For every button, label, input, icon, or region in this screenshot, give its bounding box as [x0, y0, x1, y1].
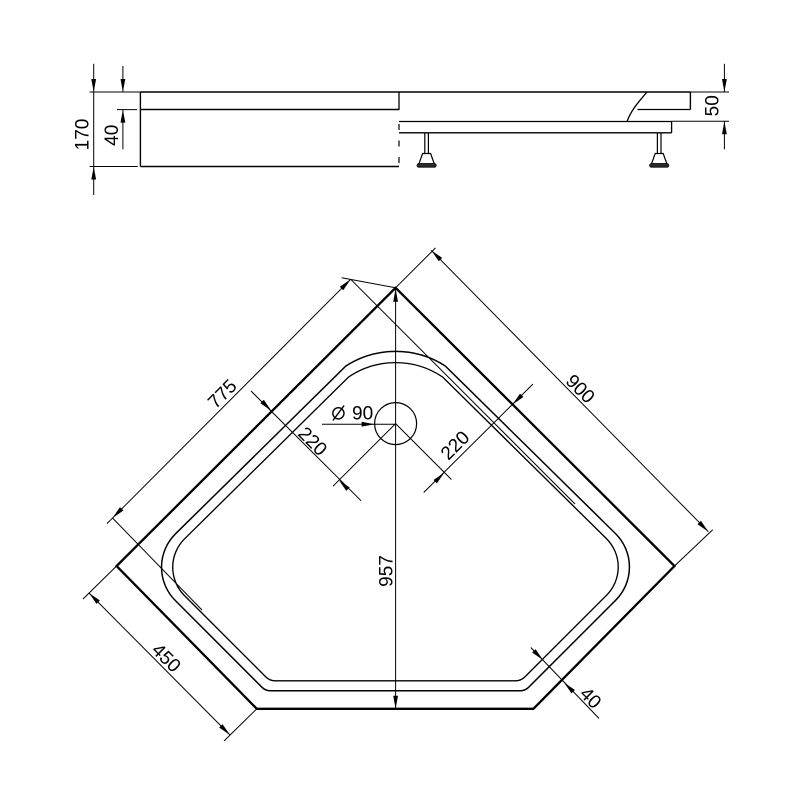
svg-text:170: 170	[73, 119, 94, 151]
svg-text:957: 957	[376, 555, 397, 587]
svg-text:50: 50	[703, 95, 724, 116]
svg-text:90: 90	[352, 403, 373, 424]
svg-text:40: 40	[102, 125, 123, 146]
